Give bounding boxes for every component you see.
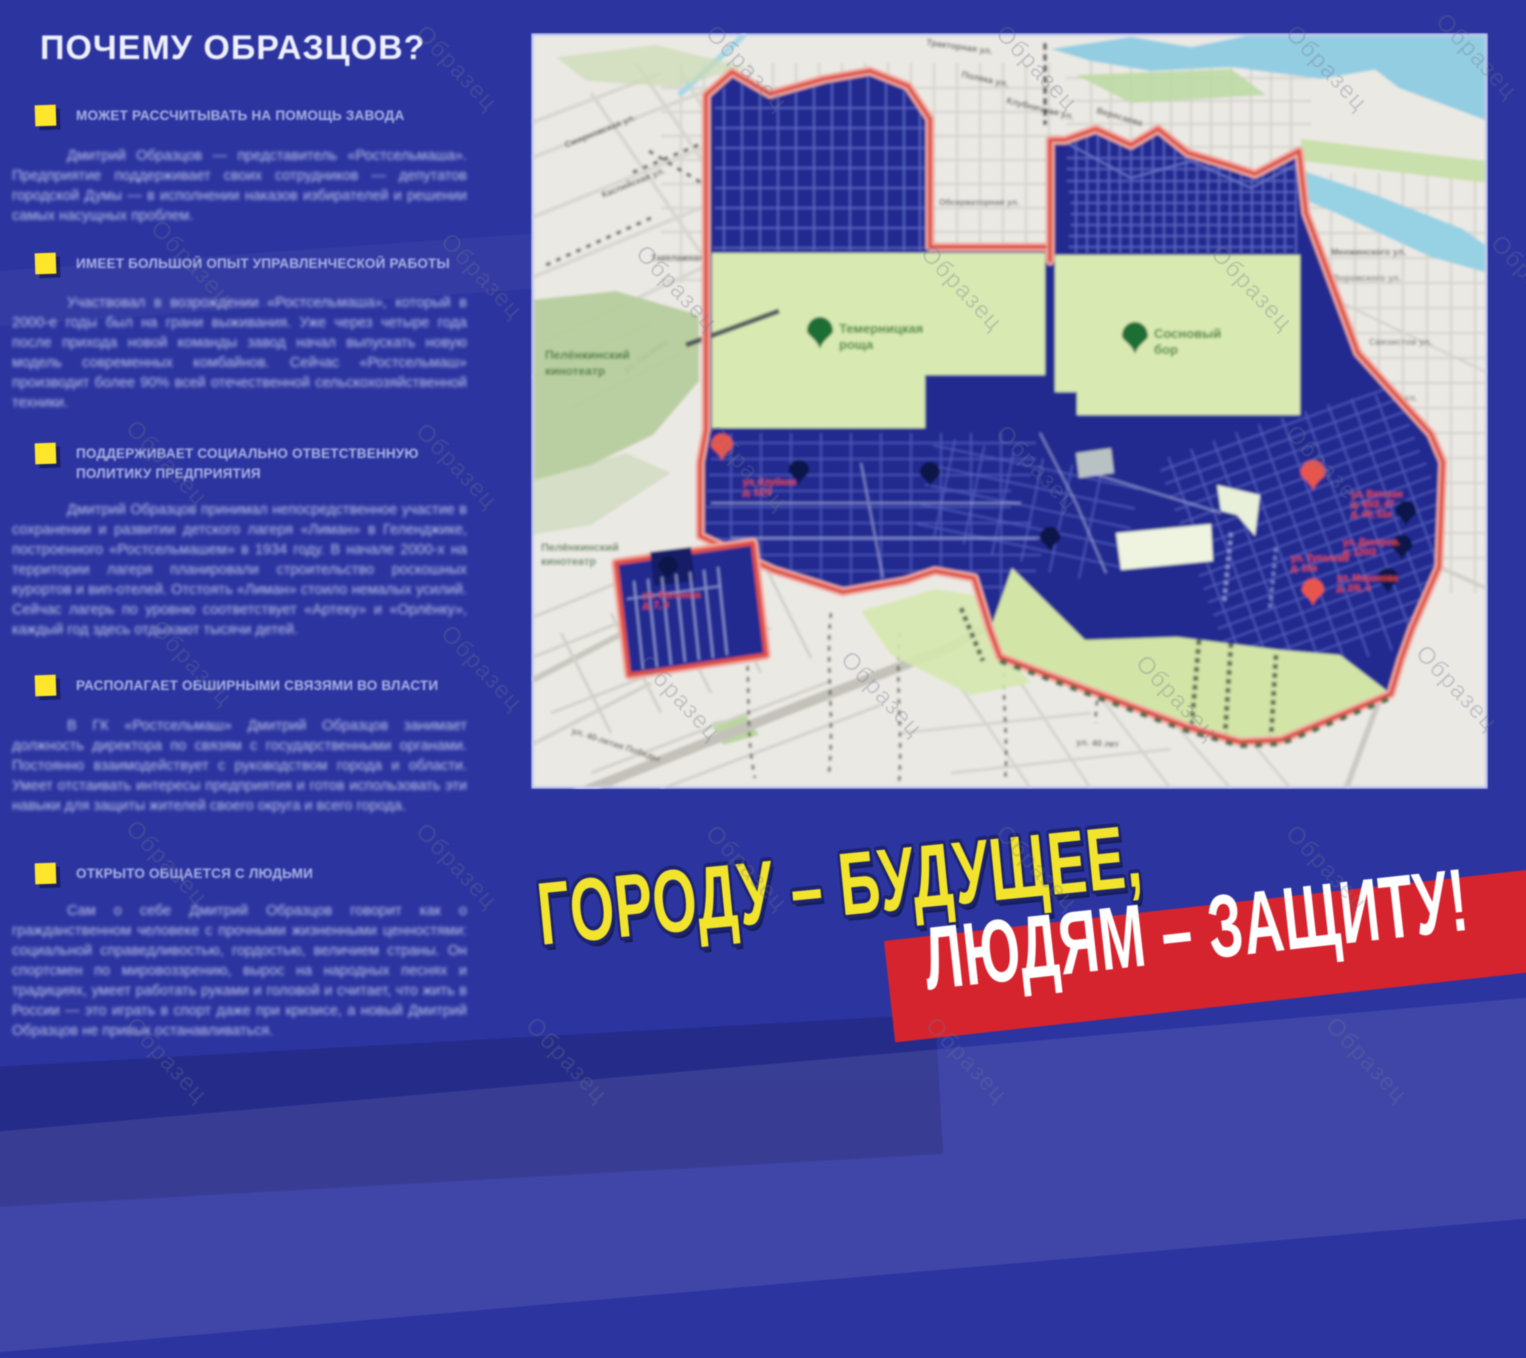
svg-text:Пелёнкинский: Пелёнкинский [541,542,619,554]
svg-text:Связистов ул.: Связистов ул. [1369,337,1432,347]
svg-text:д. 16а: д. 16а [1291,563,1318,573]
svg-text:Менжинского ул.: Менжинского ул. [1331,247,1406,257]
svg-text:ул. Клубная: ул. Клубная [743,477,796,487]
svg-text:кинотеатр: кинотеатр [541,556,596,568]
svg-text:кинотеатр: кинотеатр [545,364,605,378]
svg-text:бор: бор [1154,342,1178,357]
svg-text:ул. Миронова: ул. Миронова [1337,573,1399,583]
svg-text:Обсерваторная ул.: Обсерваторная ул. [939,197,1019,207]
svg-text:д. 45/2, 47: д. 45/2, 47 [1351,499,1394,509]
svg-text:Сосновый: Сосновый [1154,326,1221,341]
svg-text:Темерницкая: Темерницкая [839,321,923,336]
svg-text:д. 49, 51а: д. 49, 51а [1351,509,1393,519]
svg-text:ул. Туполева: ул. Туполева [1291,553,1349,563]
svg-text:Пелёнкинский: Пелёнкинский [545,348,630,362]
svg-text:д. 7, 9: д. 7, 9 [643,600,669,610]
svg-text:ул. Вятская: ул. Вятская [1351,489,1402,499]
svg-text:роща: роща [839,337,874,352]
svg-text:ул. Вагонная: ул. Вагонная [643,590,700,600]
svg-text:Воровского ул.: Воровского ул. [1333,273,1401,283]
svg-text:ул. Днепров.: ул. Днепров. [1343,537,1400,547]
svg-text:д. 2/6, 4: д. 2/6, 4 [1337,583,1370,593]
svg-text:д. 12/3: д. 12/3 [743,487,771,497]
